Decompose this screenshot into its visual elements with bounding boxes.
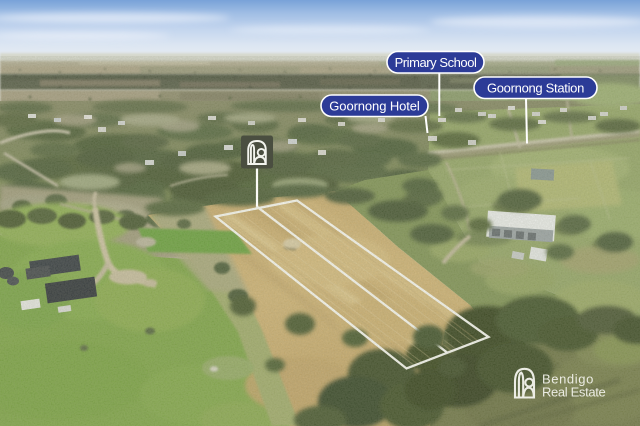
svg-text:Real Estate: Real Estate (542, 385, 605, 400)
svg-text:Goornong Hotel: Goornong Hotel (329, 98, 420, 113)
svg-text:Primary School: Primary School (395, 55, 477, 70)
svg-text:Goornong Station: Goornong Station (487, 80, 584, 95)
